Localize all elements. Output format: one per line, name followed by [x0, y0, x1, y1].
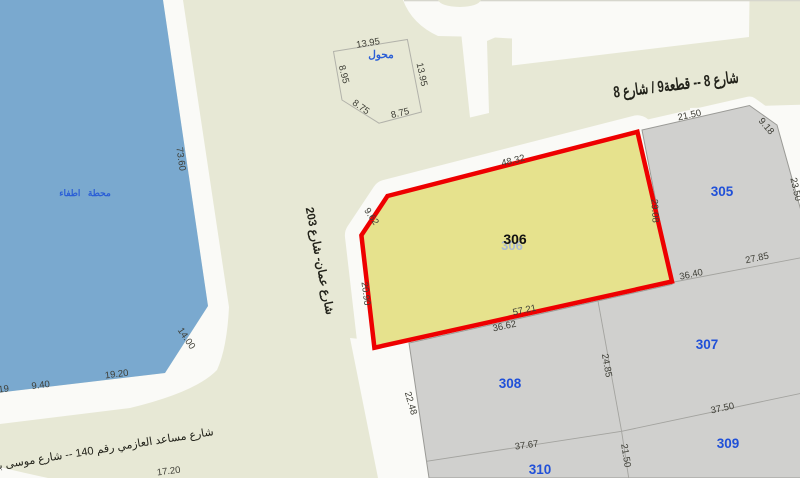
svg-text:محول: محول: [368, 49, 394, 61]
svg-text:310: 310: [529, 462, 552, 477]
svg-text:محطة اطفاء: محطة اطفاء: [59, 188, 111, 198]
svg-text:9.40: 9.40: [31, 379, 51, 392]
svg-text:29.08: 29.08: [648, 199, 660, 223]
svg-text:305: 305: [711, 184, 734, 199]
svg-text:306: 306: [503, 231, 527, 247]
svg-text:19: 19: [0, 383, 10, 395]
svg-text:307: 307: [696, 337, 719, 352]
svg-text:309: 309: [717, 436, 740, 451]
svg-text:308: 308: [499, 376, 522, 391]
